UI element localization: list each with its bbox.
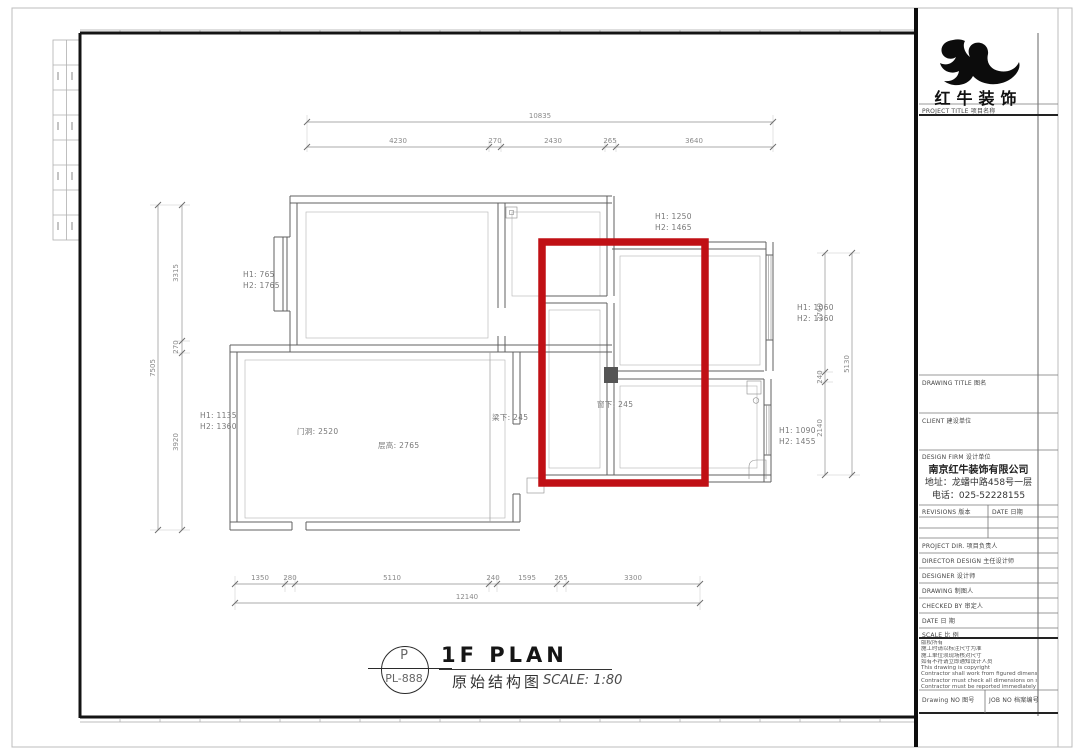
client-label: CLIENT 建设单位 xyxy=(922,416,971,425)
label-h-topmid-2: H2: 1465 xyxy=(655,223,692,232)
dimension-labels: 10835 4230 270 2430 265 3640 7505 3315 2… xyxy=(149,112,851,601)
floorplan-canvas: 10835 4230 270 2430 265 3640 7505 3315 2… xyxy=(0,0,1080,755)
plan-scale: SCALE: 1:80 xyxy=(543,673,622,688)
row-checked-by: CHECKED BY 审定人 xyxy=(922,601,983,610)
dim-bottom-3: 5110 xyxy=(383,574,401,582)
company-name: 南京红牛装饰有限公司 xyxy=(919,461,1038,476)
drawing-sheet: 10835 4230 270 2430 265 3640 7505 3315 2… xyxy=(0,0,1080,755)
label-h-left-2: H2: 1360 xyxy=(200,422,237,431)
label-h-left-1: H1: 1135 xyxy=(200,411,237,420)
company-logo xyxy=(919,38,1038,88)
dim-bottom-7: 3300 xyxy=(624,574,642,582)
dim-top-5: 3640 xyxy=(685,137,703,145)
dim-right-3: 2140 xyxy=(816,419,824,437)
dim-left-2: 270 xyxy=(172,340,180,353)
row-drawing: DRAWING 制图人 xyxy=(922,586,973,595)
company-phone: 电话：025-52228155 xyxy=(919,488,1038,501)
plan-annotations: H1: 765 H2: 1765 H1: 1250 H2: 1465 H1: 1… xyxy=(200,212,834,450)
label-h-right-1: H1: 1060 xyxy=(797,303,834,312)
label-under-beam: 梁下: 245 xyxy=(492,413,528,422)
label-ceiling-height: 层高: 2765 xyxy=(378,440,419,450)
label-h-topleft-1: H1: 765 xyxy=(243,270,275,279)
dim-bottom-6: 265 xyxy=(554,574,567,582)
dim-top-3: 2430 xyxy=(544,137,562,145)
note-line: Contractor must be reported immediately … xyxy=(921,684,1037,690)
bull-logo-icon xyxy=(931,38,1027,88)
revisions-label: REVISIONS 版本 xyxy=(922,507,971,516)
row-designer: DESIGNER 设计师 xyxy=(922,571,975,580)
label-h-topleft-2: H2: 1765 xyxy=(243,281,280,290)
column-block xyxy=(604,367,618,383)
row-project-dir: PROJECT DIR. 项目负责人 xyxy=(922,541,998,550)
pipe-symbol xyxy=(753,398,759,404)
drawing-title-label: DRAWING TITLE 图名 xyxy=(922,378,986,387)
company-address: 地址：龙蟠中路458号一层 xyxy=(919,475,1038,488)
label-h-right-2: H2: 1360 xyxy=(797,314,834,323)
dim-bottom-4: 240 xyxy=(486,574,499,582)
label-h-topmid-1: H1: 1250 xyxy=(655,212,692,221)
dim-right-2: 240 xyxy=(816,370,824,383)
shaft-symbol xyxy=(506,207,517,218)
dim-bottom-5: 1595 xyxy=(518,574,536,582)
dim-bottom-2: 280 xyxy=(283,574,296,582)
plan-title-underline xyxy=(439,669,612,670)
room-inner-outlines xyxy=(245,212,760,518)
row-scale: SCALE 比 例 xyxy=(922,630,959,639)
drawing-no-label: Drawing NO 图号 xyxy=(922,695,975,704)
row-date: DATE 日 期 xyxy=(922,616,955,625)
job-no-label: JOB NO 档案编号 xyxy=(989,695,1039,704)
titleblock-grid xyxy=(919,33,1058,716)
dim-left-total: 7505 xyxy=(149,359,157,377)
project-title-label: PROJECT TITLE 项目名称 xyxy=(922,106,996,115)
design-firm-label: DESIGN FIRM 设计单位 xyxy=(922,452,991,461)
label-door-opening: 门洞: 2520 xyxy=(297,427,338,436)
notes-block: 版权所有 施工时请以标注尺寸为准 施工单位须现场核对尺寸 如有不符请立即通知设计… xyxy=(921,640,1037,690)
dim-top-1: 4230 xyxy=(389,137,407,145)
label-h-bottomright-1: H1: 1090 xyxy=(779,426,816,435)
note-line: Contractor shall work from figured dimen… xyxy=(921,671,1037,677)
dim-top-2: 270 xyxy=(488,137,501,145)
duct-box xyxy=(747,381,761,394)
row-director-design: DIRECTOR DESIGN 主任设计师 xyxy=(922,556,1014,565)
dim-bottom-total: 12140 xyxy=(456,593,478,601)
highlight-box xyxy=(542,242,705,483)
label-h-bottomright-2: H2: 1455 xyxy=(779,437,816,446)
revisions-date-label: DATE 日期 xyxy=(992,507,1023,516)
drawing-ref-code: PL-888 xyxy=(378,672,430,685)
dim-left-3: 3920 xyxy=(172,433,180,451)
binding-strip xyxy=(53,40,80,240)
plan-subtitle: 原始结构图 xyxy=(452,671,542,692)
dim-bottom-1: 1350 xyxy=(251,574,269,582)
drawing-ref-letter: P xyxy=(381,648,427,663)
label-under-window: 窗下: 245 xyxy=(597,399,633,409)
dim-top-total: 10835 xyxy=(529,112,551,120)
basin-symbol xyxy=(749,460,766,479)
dim-top-4: 265 xyxy=(603,137,616,145)
dim-right-total: 5130 xyxy=(843,355,851,373)
dim-left-1: 3315 xyxy=(172,264,180,282)
plan-title: 1F PLAN xyxy=(441,643,568,667)
